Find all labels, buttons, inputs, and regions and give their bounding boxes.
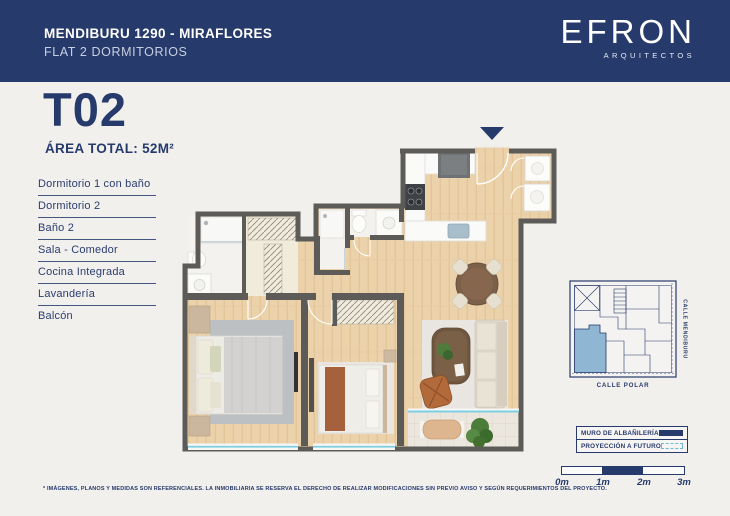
room-list-item: Dormitorio 1 con baño	[38, 174, 156, 196]
coffee-table	[432, 328, 470, 384]
legend-label: PROYECCIÓN A FUTURO	[581, 443, 661, 450]
room-list-item: Balcón	[38, 306, 156, 327]
scale-label: 2m	[637, 477, 651, 488]
project-title: MENDIBURU 1290 - MIRAFLORES	[44, 26, 272, 41]
street-label-bottom: CALLE POLAR	[597, 382, 650, 389]
bed-1-headboard	[189, 336, 196, 414]
balcony	[408, 413, 519, 449]
room-list-item: Dormitorio 2	[38, 196, 156, 218]
room-list-item: Cocina Integrada	[38, 262, 156, 284]
legend-row-wall: MURO DE ALBAÑILERÍA	[577, 427, 687, 440]
unit-area-total: ÁREA TOTAL: 52M²	[45, 141, 174, 156]
site-map: CALLE MENDIBURU CALLE POLAR	[562, 277, 694, 400]
scale-bar	[561, 466, 685, 475]
stove	[405, 184, 425, 210]
bedroom-1	[189, 306, 298, 436]
room-list-item: Baño 2	[38, 218, 156, 240]
floor-plan	[180, 124, 560, 469]
toilet-2	[352, 216, 366, 233]
disclaimer-text: * IMÁGENES, PLANOS Y MEDIDAS SON REFEREN…	[43, 486, 607, 492]
unit-code: T02	[43, 86, 127, 133]
tv-console-bedroom-2	[309, 358, 314, 412]
floor-plan-svg	[180, 124, 560, 464]
legend-row-future: PROYECCIÓN A FUTURO	[577, 440, 687, 452]
room-list-item: Sala - Comedor	[38, 240, 156, 262]
sofa	[475, 320, 507, 408]
shower-2	[320, 210, 344, 238]
entry-arrow-icon	[480, 127, 504, 140]
sink	[448, 224, 469, 238]
scale-label: 3m	[677, 477, 691, 488]
room-list-item: Lavandería	[38, 284, 156, 306]
kitchen-island	[405, 221, 486, 241]
flyer-page: MENDIBURU 1290 - MIRAFLORES FLAT 2 DORMI…	[0, 0, 730, 516]
legend-box: MURO DE ALBAÑILERÍA PROYECCIÓN A FUTURO	[576, 426, 688, 453]
project-subtitle: FLAT 2 DORMITORIOS	[44, 45, 187, 59]
shower-1	[201, 217, 243, 243]
room-list: Dormitorio 1 con baño Dormitorio 2 Baño …	[38, 174, 156, 327]
closet-2	[337, 300, 394, 324]
scale-bar-segment	[602, 467, 643, 474]
header-bar: MENDIBURU 1290 - MIRAFLORES FLAT 2 DORMI…	[0, 0, 730, 82]
tv-bedroom-1	[294, 352, 298, 392]
brand-subtitle: ARQUITECTOS	[561, 51, 696, 60]
bedroom-2	[309, 350, 396, 434]
brand-name: EFRON	[561, 15, 697, 48]
street-label-right: CALLE MENDIBURU	[682, 299, 688, 358]
brand-logo: EFRON ARQUITECTOS	[561, 15, 693, 60]
balcony-chair	[420, 420, 464, 439]
site-map-svg: CALLE MENDIBURU CALLE POLAR	[562, 277, 694, 395]
solid-wall-swatch	[659, 430, 683, 436]
legend-label: MURO DE ALBAÑILERÍA	[581, 430, 659, 437]
closet-1	[246, 216, 298, 296]
dashed-future-swatch	[661, 443, 683, 449]
